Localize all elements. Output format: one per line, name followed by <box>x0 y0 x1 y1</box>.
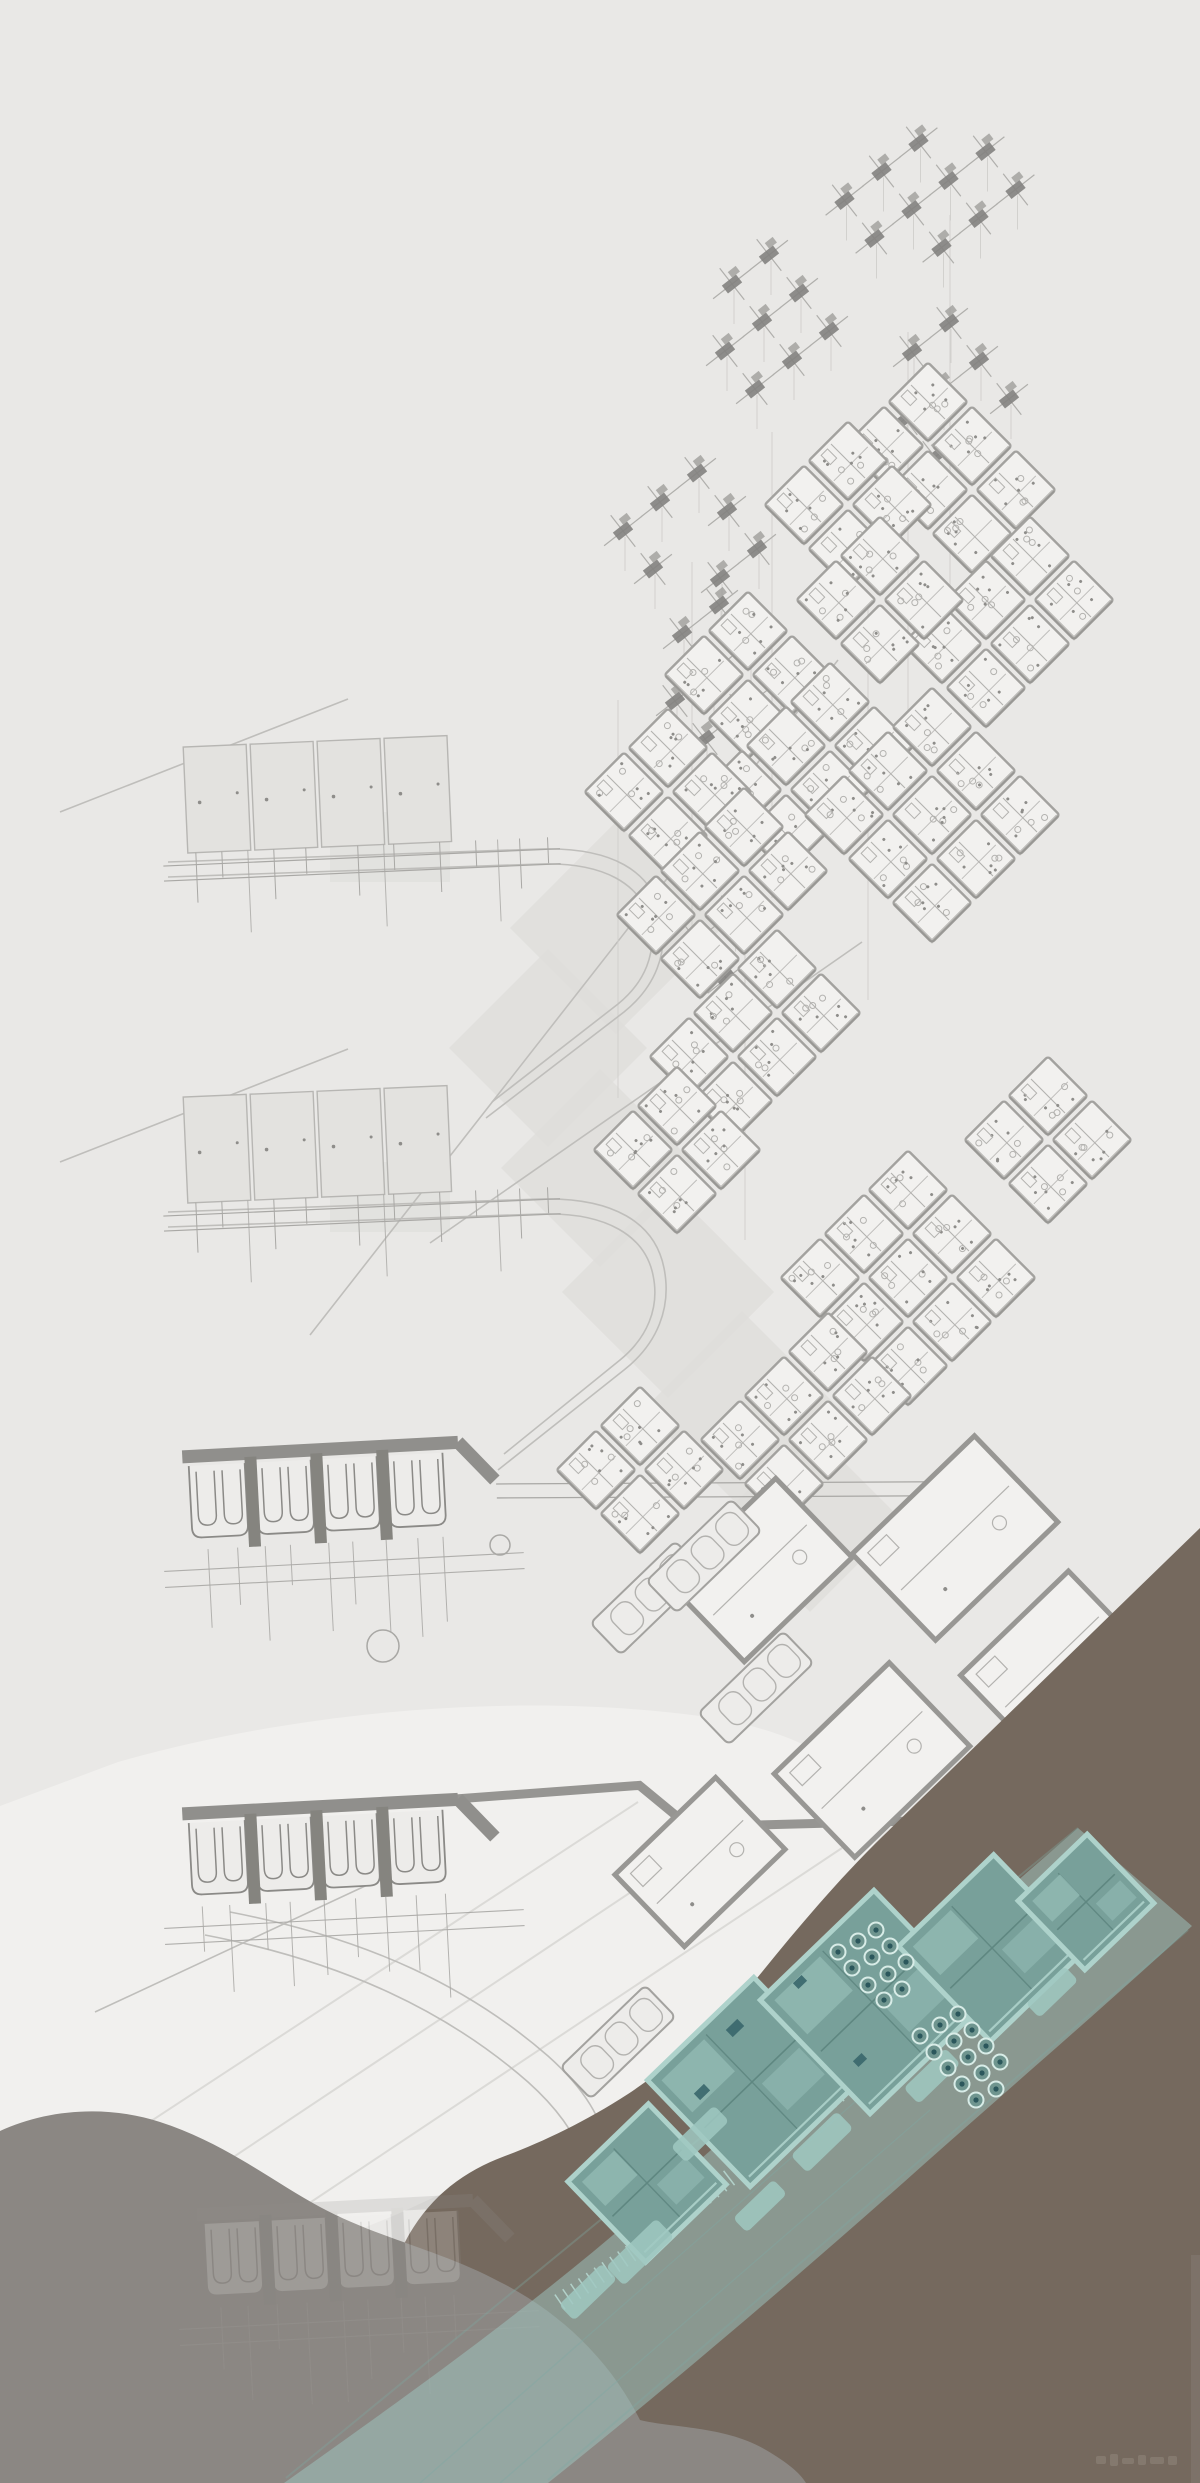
tree-symbol <box>899 1955 914 1970</box>
elevation-panel <box>317 1089 385 1198</box>
tree-symbol <box>961 2050 976 2065</box>
elevation-panel <box>384 1086 452 1195</box>
elevation-panel <box>183 744 251 853</box>
elevation-panel <box>250 1091 318 1200</box>
tree-symbol <box>989 2082 1004 2097</box>
tree-symbol <box>845 1961 860 1976</box>
elevation-panel <box>384 736 452 845</box>
tree-symbol <box>881 1967 896 1982</box>
tree-symbol <box>941 2061 956 2076</box>
tree-symbol <box>933 2018 948 2033</box>
architectural-masterplan-drawing <box>0 0 1200 2483</box>
elevation-panel <box>317 739 385 848</box>
elevation-panel <box>183 1094 251 1203</box>
tree-symbol <box>913 2029 928 2044</box>
tree-symbol <box>861 1978 876 1993</box>
tree-symbol <box>877 1993 892 2008</box>
tree-symbol <box>975 2066 990 2081</box>
tree-symbol <box>965 2023 980 2038</box>
tree-symbol <box>969 2093 984 2108</box>
tree-symbol <box>895 1982 910 1997</box>
drawing-canvas <box>0 0 1200 2483</box>
tree-symbol <box>955 2077 970 2092</box>
tree-symbol <box>831 1945 846 1960</box>
tree-symbol <box>947 2034 962 2049</box>
tree-symbol <box>927 2045 942 2060</box>
tree-symbol <box>851 1934 866 1949</box>
edge-strip <box>1191 2255 1200 2483</box>
tree-symbol <box>951 2007 966 2022</box>
tree-symbol <box>993 2055 1008 2070</box>
tree-symbol <box>869 1923 884 1938</box>
elevation-panel <box>250 741 318 850</box>
tree-symbol <box>883 1939 898 1954</box>
tree-symbol <box>979 2039 994 2054</box>
tree-symbol <box>865 1950 880 1965</box>
